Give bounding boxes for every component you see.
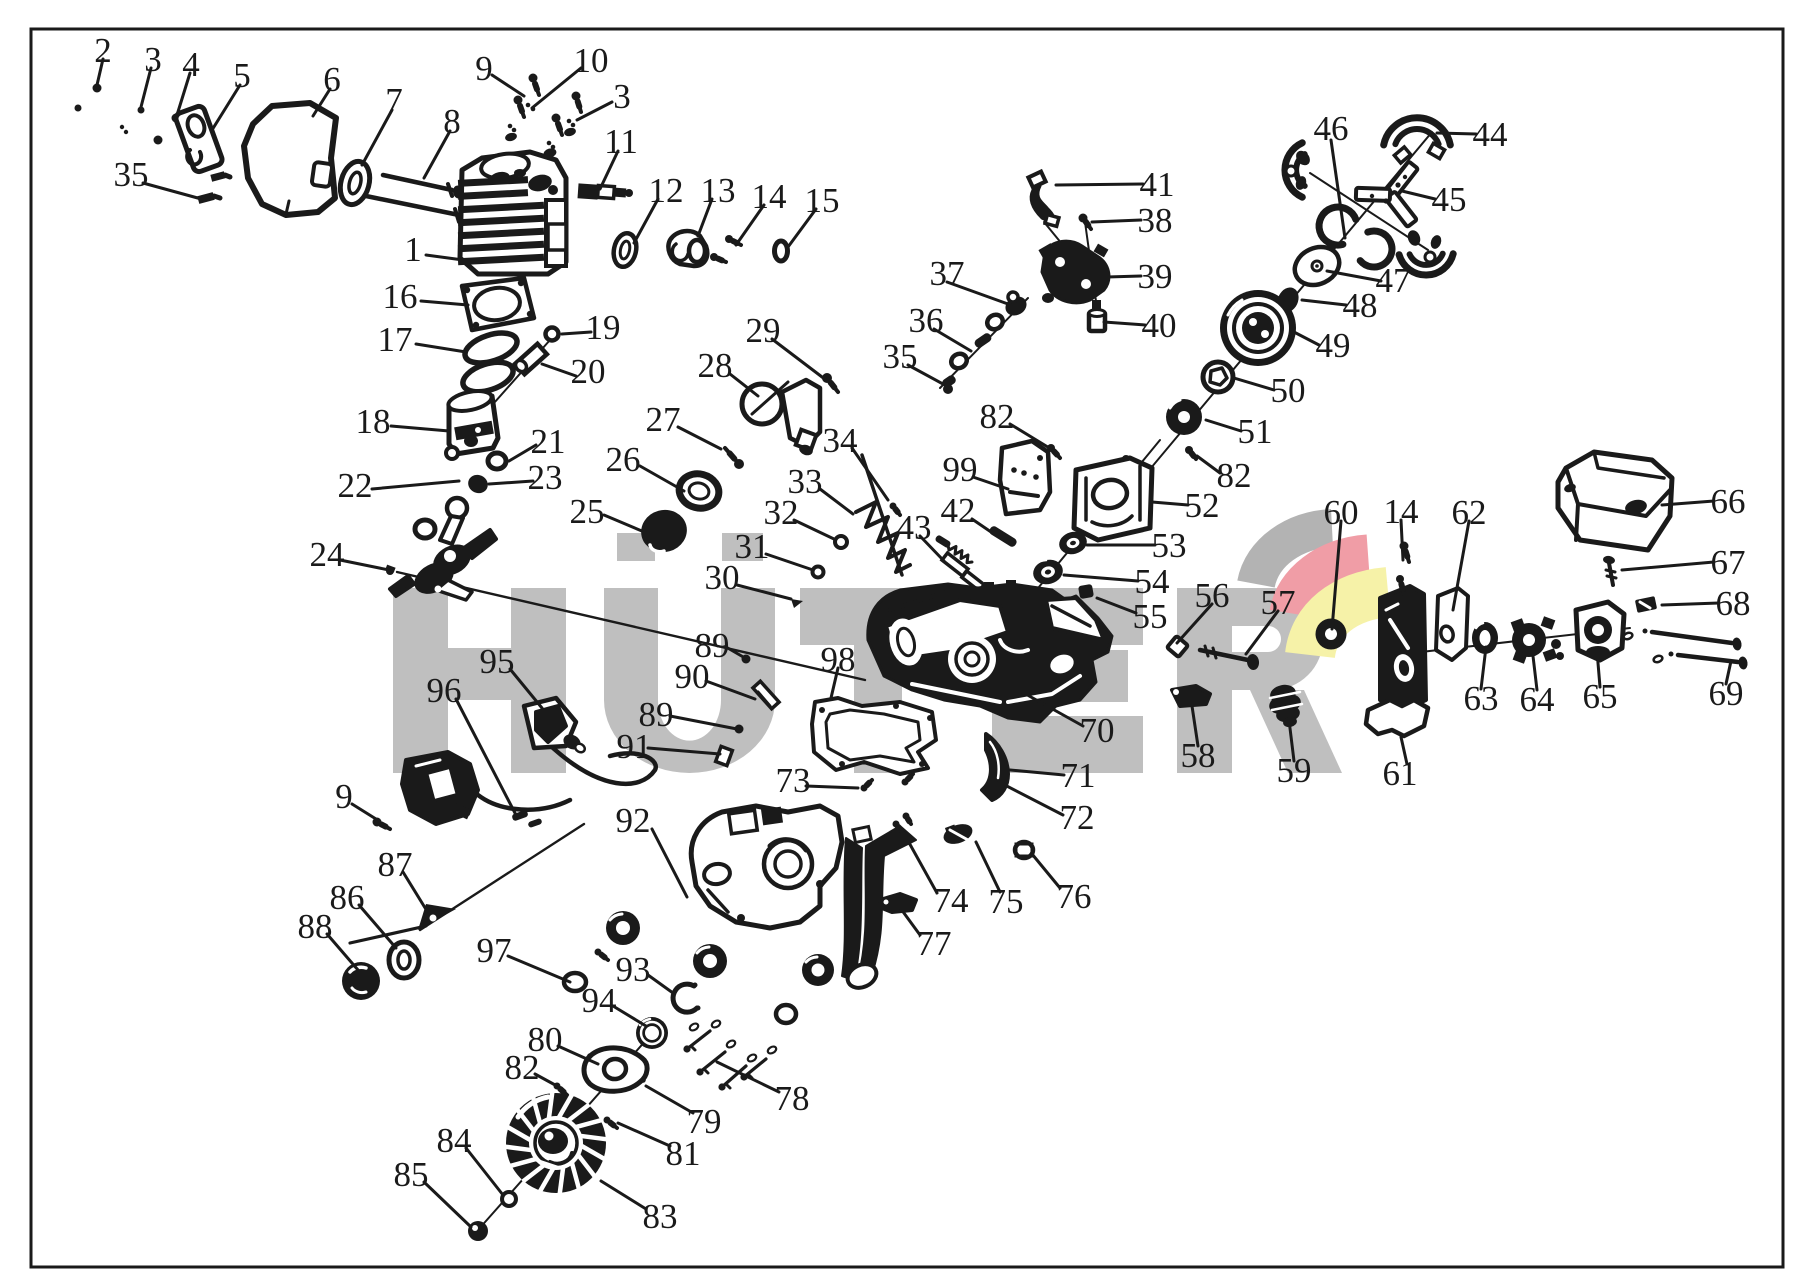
svg-text:48: 48 [1343,286,1378,325]
svg-text:71: 71 [1061,756,1096,795]
svg-text:9: 9 [475,49,493,88]
svg-text:81: 81 [666,1134,701,1173]
svg-text:95: 95 [480,642,515,681]
svg-text:64: 64 [1520,680,1555,719]
svg-text:5: 5 [233,56,251,95]
svg-text:55: 55 [1133,597,1168,636]
svg-text:59: 59 [1277,751,1312,790]
svg-text:15: 15 [805,181,840,220]
svg-text:74: 74 [934,881,969,920]
svg-text:99: 99 [943,450,978,489]
svg-text:43: 43 [897,508,932,547]
svg-text:82: 82 [1217,456,1252,495]
svg-text:35: 35 [114,155,149,194]
svg-text:4: 4 [182,45,200,84]
svg-text:86: 86 [330,878,365,917]
svg-text:45: 45 [1432,180,1467,219]
svg-text:24: 24 [310,535,345,574]
svg-text:41: 41 [1140,165,1175,204]
svg-text:42: 42 [941,491,976,530]
svg-text:25: 25 [570,492,605,531]
svg-text:16: 16 [383,277,418,316]
svg-text:82: 82 [980,397,1015,436]
svg-text:23: 23 [528,458,563,497]
svg-text:62: 62 [1452,493,1487,532]
svg-text:47: 47 [1376,261,1411,300]
svg-text:10: 10 [574,41,609,80]
svg-text:44: 44 [1473,115,1508,154]
svg-text:14: 14 [752,177,787,216]
svg-text:77: 77 [917,924,952,963]
svg-text:92: 92 [616,801,651,840]
svg-text:21: 21 [531,422,566,461]
svg-text:52: 52 [1185,486,1220,525]
svg-text:17: 17 [378,320,413,359]
svg-text:18: 18 [356,402,391,441]
svg-text:88: 88 [298,907,333,946]
svg-text:91: 91 [617,727,652,766]
svg-text:31: 31 [735,527,770,566]
svg-text:9: 9 [335,777,353,816]
svg-text:90: 90 [675,657,710,696]
svg-text:96: 96 [427,671,462,710]
svg-text:61: 61 [1383,754,1418,793]
svg-text:50: 50 [1271,371,1306,410]
svg-text:40: 40 [1142,306,1177,345]
svg-text:56: 56 [1195,576,1230,615]
svg-text:78: 78 [775,1079,810,1118]
svg-text:1: 1 [404,230,422,269]
svg-text:28: 28 [698,346,733,385]
svg-text:36: 36 [909,301,944,340]
svg-text:20: 20 [571,352,606,391]
svg-text:57: 57 [1261,583,1296,622]
svg-text:75: 75 [989,882,1024,921]
svg-text:27: 27 [646,400,681,439]
svg-text:3: 3 [613,77,631,116]
svg-text:85: 85 [394,1155,429,1194]
svg-text:72: 72 [1060,798,1095,837]
svg-text:35: 35 [883,337,918,376]
svg-text:37: 37 [930,254,965,293]
svg-text:34: 34 [823,421,858,460]
svg-text:98: 98 [821,640,856,679]
svg-text:58: 58 [1181,736,1216,775]
svg-text:87: 87 [378,845,413,884]
svg-text:14: 14 [1384,492,1419,531]
svg-text:3: 3 [144,40,162,79]
svg-text:6: 6 [323,60,341,99]
svg-text:39: 39 [1138,257,1173,296]
svg-text:2: 2 [94,31,112,70]
svg-text:30: 30 [705,558,740,597]
svg-text:83: 83 [643,1197,678,1236]
svg-text:93: 93 [616,950,651,989]
svg-text:29: 29 [746,311,781,350]
svg-text:19: 19 [586,308,621,347]
svg-text:76: 76 [1057,877,1092,916]
svg-text:94: 94 [582,981,617,1020]
svg-text:22: 22 [338,466,373,505]
svg-text:97: 97 [477,931,512,970]
svg-text:60: 60 [1324,493,1359,532]
svg-text:7: 7 [385,81,403,120]
svg-text:11: 11 [604,122,638,161]
svg-text:53: 53 [1152,526,1187,565]
svg-text:49: 49 [1316,326,1351,365]
svg-text:66: 66 [1711,482,1746,521]
svg-text:67: 67 [1711,543,1746,582]
svg-text:54: 54 [1135,562,1170,601]
svg-text:70: 70 [1080,711,1115,750]
svg-text:73: 73 [776,761,811,800]
svg-text:63: 63 [1464,679,1499,718]
svg-text:46: 46 [1314,109,1349,148]
svg-text:26: 26 [606,440,641,479]
svg-text:13: 13 [701,171,736,210]
svg-text:69: 69 [1709,674,1744,713]
svg-text:38: 38 [1138,201,1173,240]
svg-text:51: 51 [1238,412,1273,451]
svg-text:65: 65 [1583,677,1618,716]
svg-text:12: 12 [649,171,684,210]
svg-text:82: 82 [505,1048,540,1087]
svg-text:8: 8 [443,102,461,141]
svg-text:68: 68 [1716,584,1751,623]
svg-text:84: 84 [437,1121,472,1160]
